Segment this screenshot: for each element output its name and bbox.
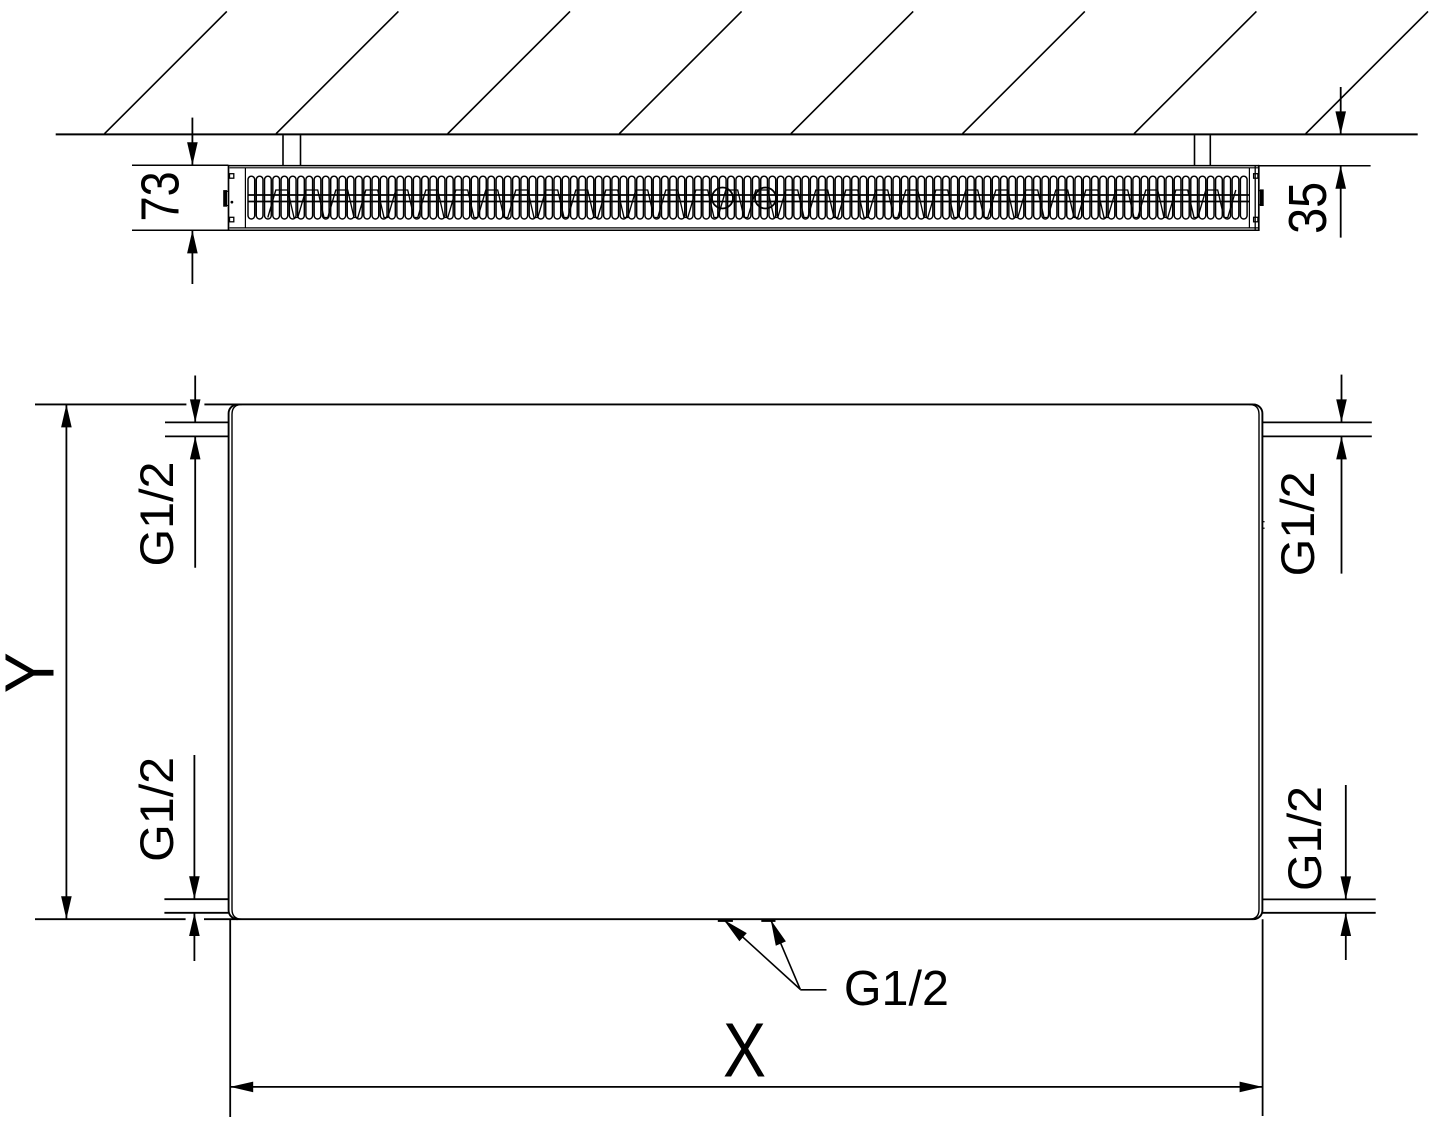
svg-text:G1/2: G1/2 (844, 961, 949, 1016)
svg-text:G1/2: G1/2 (1278, 786, 1331, 891)
svg-text:73: 73 (131, 171, 191, 221)
svg-text:G1/2: G1/2 (1271, 471, 1324, 576)
svg-text:G1/2: G1/2 (130, 757, 183, 862)
svg-text:35: 35 (1278, 182, 1338, 234)
svg-text:Y: Y (0, 652, 69, 693)
svg-text:X: X (723, 1008, 766, 1094)
svg-text:G1/2: G1/2 (130, 462, 183, 567)
